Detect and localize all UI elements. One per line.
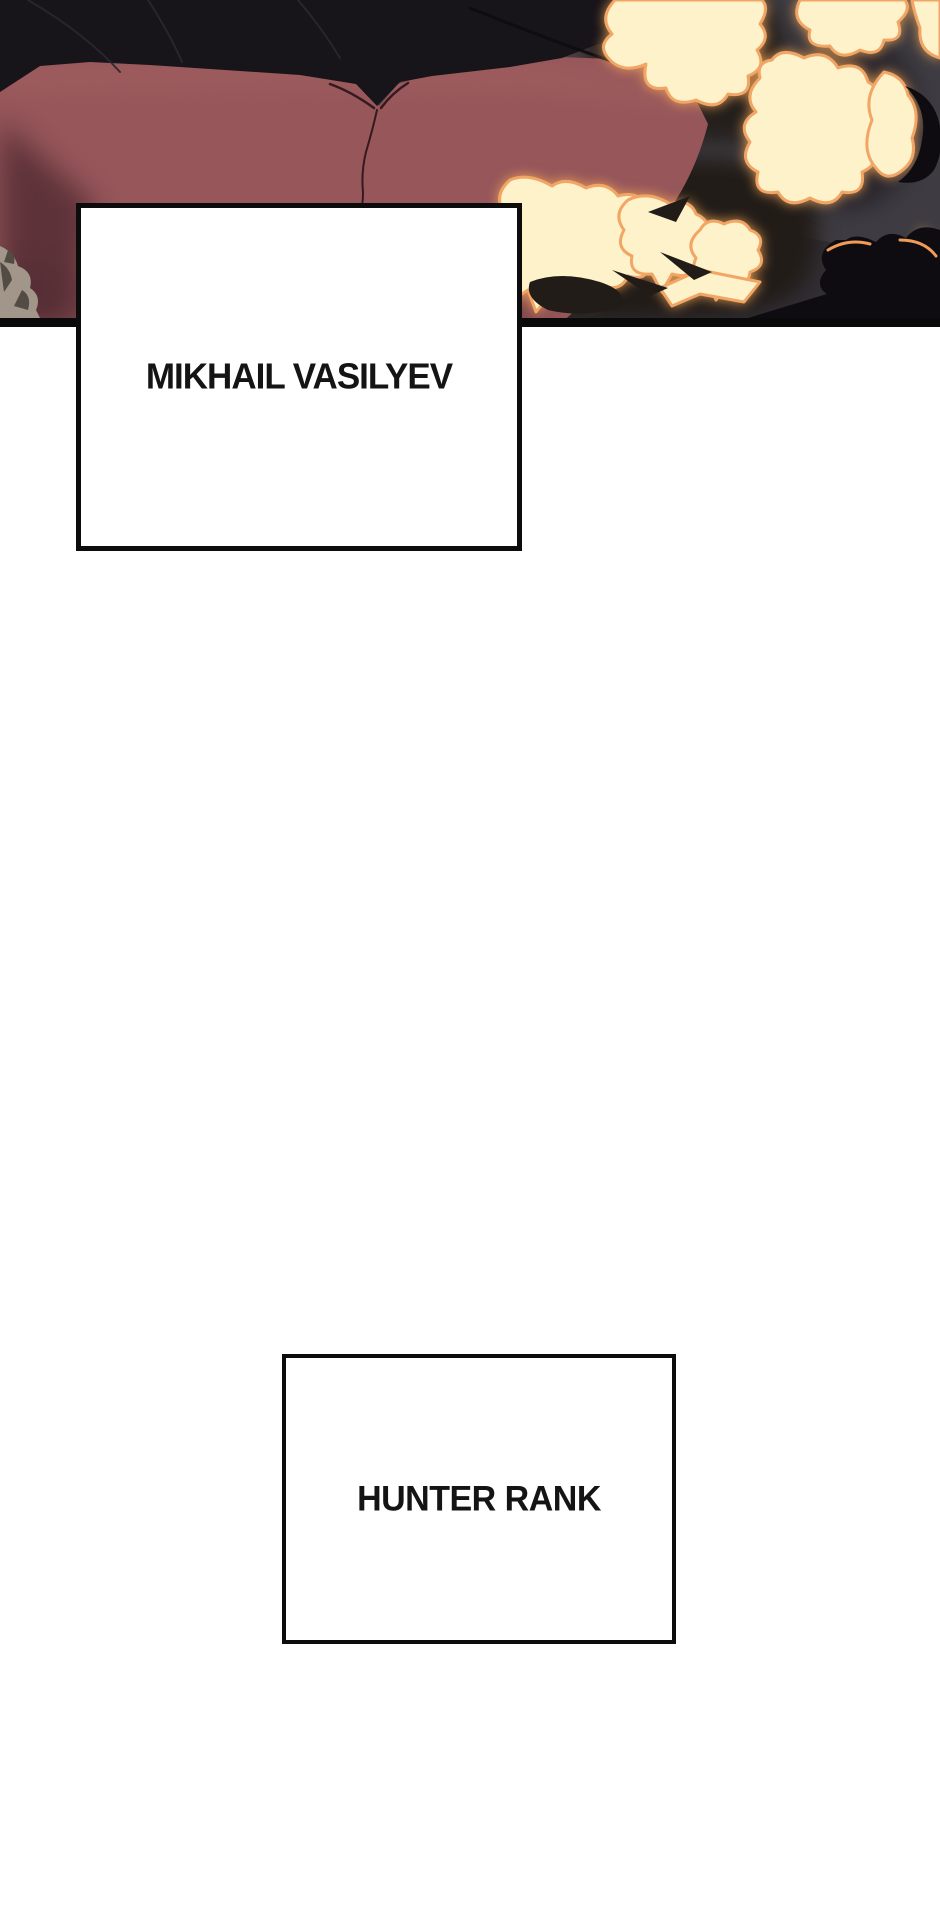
caption-box-character-name: MIKHAIL VASILYEV (76, 203, 522, 551)
hunter-rank-text: HUNTER RANK (357, 1479, 601, 1520)
character-name-text: MIKHAIL VASILYEV (146, 356, 452, 398)
comic-page: MIKHAIL VASILYEV HUNTER RANK (0, 0, 940, 1923)
caption-box-hunter-rank: HUNTER RANK (282, 1354, 676, 1644)
